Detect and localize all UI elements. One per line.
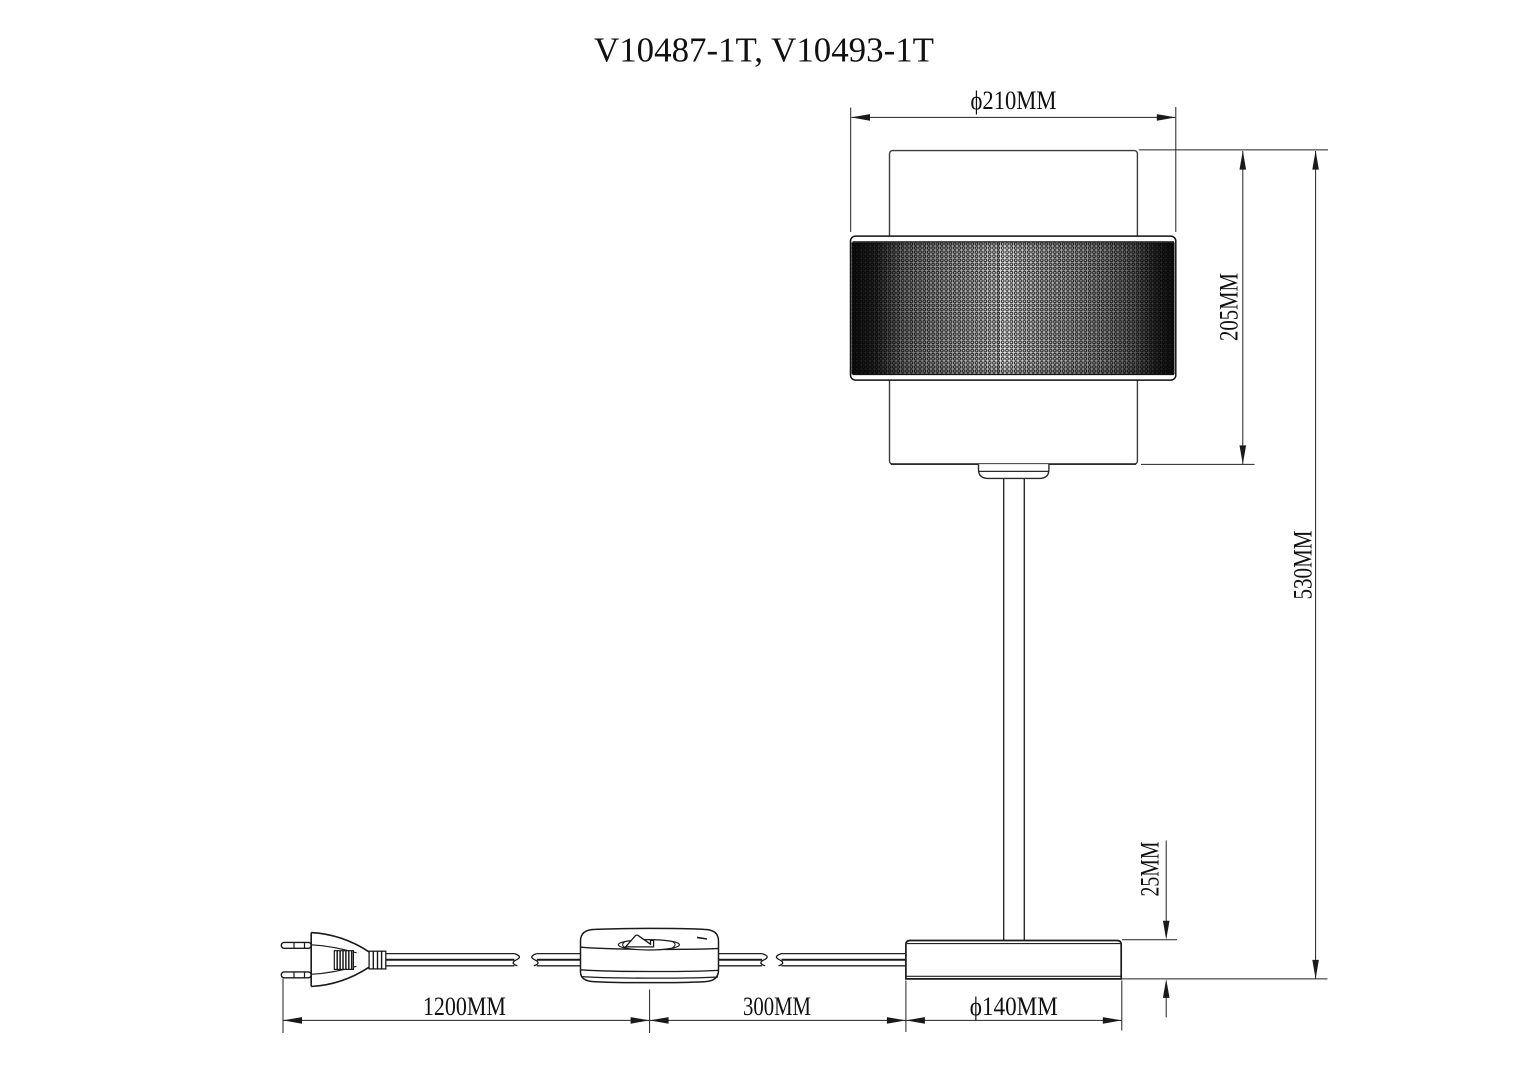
svg-text:205MM: 205MM [1215,273,1244,341]
svg-text:25MM: 25MM [1136,842,1165,897]
svg-text:ϕ140MM: ϕ140MM [970,992,1058,1021]
svg-text:ϕ210MM: ϕ210MM [971,86,1057,115]
svg-text:1200MM: 1200MM [423,992,506,1021]
svg-text:530MM: 530MM [1289,531,1318,600]
svg-text:V10487-1T, V10493-1T: V10487-1T, V10493-1T [594,31,934,70]
svg-text:300MM: 300MM [743,992,811,1021]
